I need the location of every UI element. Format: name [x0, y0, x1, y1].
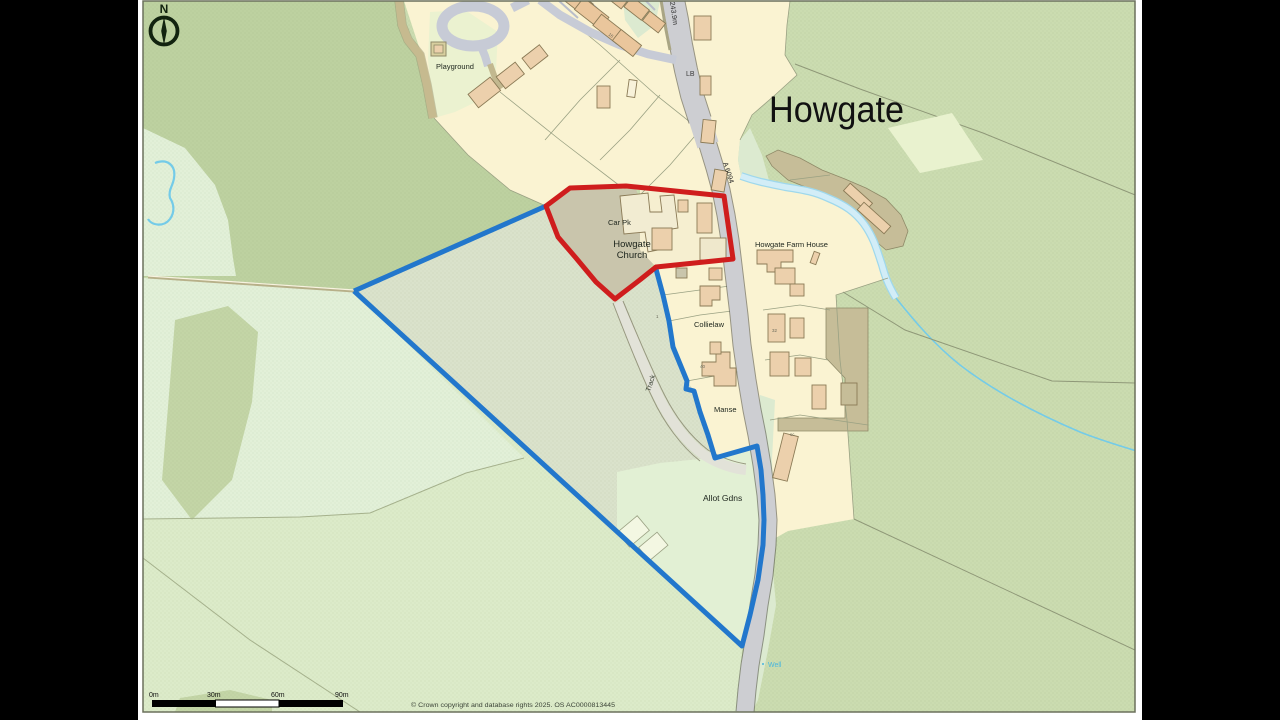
svg-text:Well: Well [768, 662, 782, 669]
svg-text:Church: Church [617, 250, 648, 261]
svg-text:60m: 60m [271, 692, 285, 699]
svg-text:N: N [160, 2, 169, 16]
svg-text:Car Pk: Car Pk [608, 218, 631, 227]
svg-text:LB: LB [686, 71, 695, 78]
svg-text:0m: 0m [149, 692, 159, 699]
svg-text:30m: 30m [207, 692, 221, 699]
svg-text:Playground: Playground [436, 62, 474, 71]
svg-text:Allot Gdns: Allot Gdns [703, 493, 742, 503]
svg-text:Howgate Farm House: Howgate Farm House [755, 240, 828, 249]
svg-text:40: 40 [700, 364, 706, 369]
svg-text:90m: 90m [335, 692, 349, 699]
svg-text:Howgate: Howgate [769, 88, 904, 130]
svg-text:Manse: Manse [714, 405, 737, 414]
svg-text:sc: sc [790, 432, 795, 437]
svg-text:Howgate: Howgate [613, 239, 651, 250]
svg-text:© Crown copyright and database: © Crown copyright and database rights 20… [411, 701, 615, 709]
svg-text:Collielaw: Collielaw [694, 320, 725, 329]
svg-text:32: 32 [772, 328, 778, 333]
